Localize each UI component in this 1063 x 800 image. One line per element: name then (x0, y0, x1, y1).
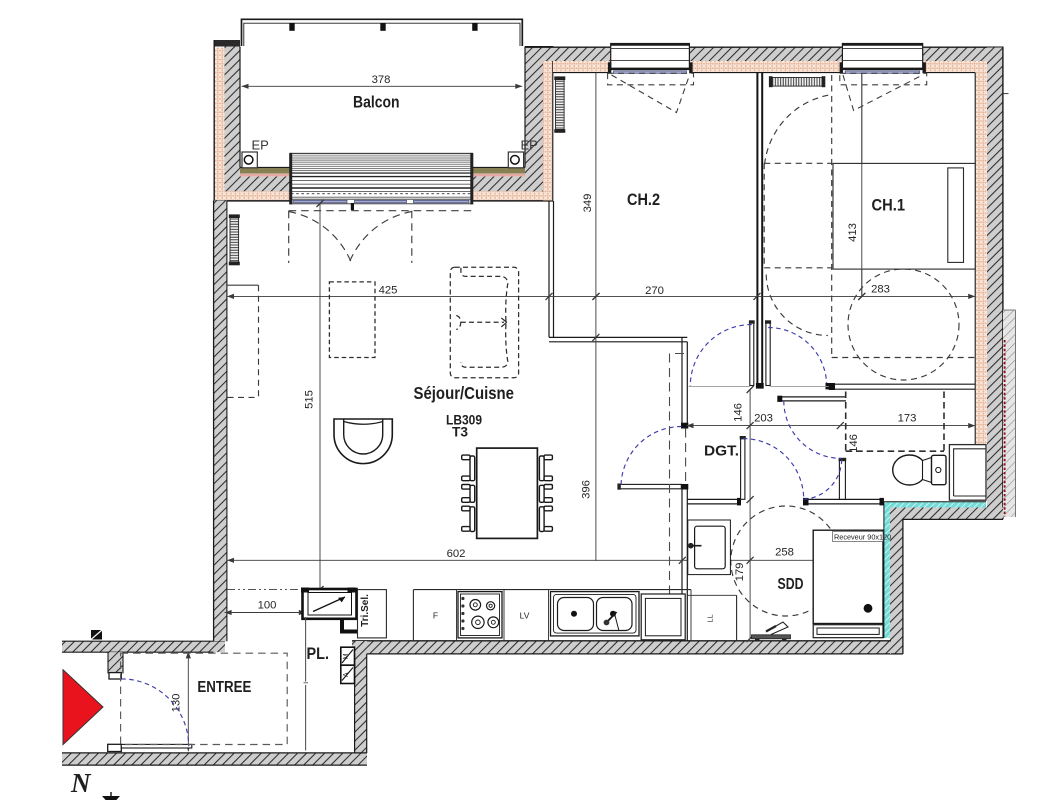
svg-text:173: 173 (898, 413, 917, 425)
svg-text:258: 258 (775, 547, 794, 559)
svg-text:DGT.: DGT. (704, 443, 739, 460)
svg-text:N: N (70, 768, 92, 798)
svg-text:283: 283 (871, 283, 890, 295)
svg-text:Tri.Sel.: Tri.Sel. (360, 594, 371, 627)
svg-text:179: 179 (734, 563, 746, 582)
svg-text:F: F (433, 610, 438, 620)
svg-text:LL: LL (706, 614, 715, 622)
svg-text:CH.1: CH.1 (872, 196, 906, 215)
svg-text:Receveur 90x120: Receveur 90x120 (834, 532, 891, 541)
svg-text:Séjour/Cuisne: Séjour/Cuisne (414, 383, 515, 403)
svg-text:515: 515 (304, 390, 316, 409)
svg-text:378: 378 (372, 74, 391, 86)
svg-text:425: 425 (379, 284, 398, 296)
svg-text:EP: EP (521, 138, 538, 153)
svg-text:SDD: SDD (778, 576, 804, 593)
svg-text:413: 413 (847, 223, 859, 242)
svg-text:396: 396 (581, 480, 593, 499)
svg-text:M: M (343, 653, 350, 659)
svg-text:LV: LV (520, 610, 530, 620)
svg-text:270: 270 (645, 285, 664, 297)
svg-text:EP: EP (252, 138, 269, 153)
svg-text:146: 146 (848, 434, 860, 453)
svg-text:ENTREE: ENTREE (197, 679, 251, 696)
svg-text:T3: T3 (452, 425, 468, 440)
svg-text:100: 100 (258, 600, 277, 612)
svg-text:CH.2: CH.2 (627, 190, 660, 209)
svg-text:602: 602 (447, 548, 466, 560)
svg-text:349: 349 (582, 194, 594, 213)
svg-text:Balcon: Balcon (353, 93, 400, 112)
svg-text:PL.: PL. (307, 645, 330, 663)
svg-text:A: A (343, 672, 350, 677)
svg-text:203: 203 (754, 413, 773, 425)
svg-text:146: 146 (733, 403, 745, 422)
